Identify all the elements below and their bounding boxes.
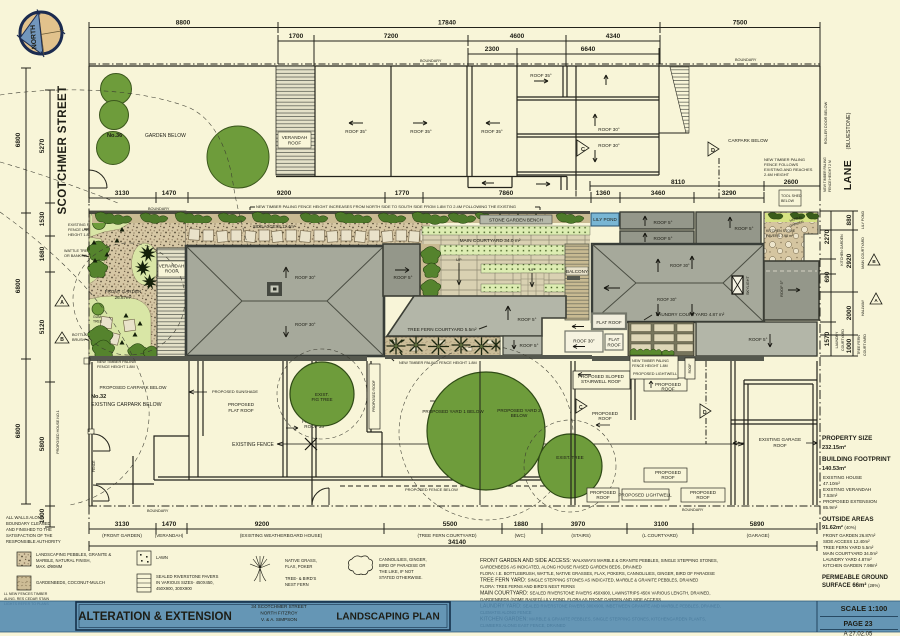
- svg-text:SIDE ACCESS 12.4m²: SIDE ACCESS 12.4m²: [253, 224, 296, 229]
- svg-text:FENCE HEIGHT 2 M: FENCE HEIGHT 2 M: [828, 160, 832, 192]
- svg-text:5800: 5800: [39, 436, 46, 451]
- svg-text:1000: 1000: [846, 338, 853, 353]
- svg-text:3970: 3970: [571, 521, 586, 528]
- svg-text:ROOF 35°: ROOF 35°: [481, 129, 503, 134]
- svg-text:BUILDING FOOTPRINT: BUILDING FOOTPRINT: [822, 456, 891, 463]
- svg-text:47.10m²: 47.10m²: [823, 481, 840, 486]
- svg-text:7200: 7200: [384, 33, 399, 40]
- svg-text:EXISTING FENCE: EXISTING FENCE: [232, 442, 274, 448]
- svg-text:ROOF: ROOF: [288, 141, 301, 146]
- svg-text:BOUNDARY: BOUNDARY: [735, 58, 757, 62]
- svg-text:ROOF: ROOF: [773, 443, 786, 448]
- svg-text:LILY POND: LILY POND: [593, 217, 617, 222]
- svg-text:6640: 6640: [581, 46, 596, 53]
- svg-text:NEW TIMBER PALING: NEW TIMBER PALING: [823, 157, 827, 192]
- svg-text:1880: 1880: [514, 521, 529, 528]
- svg-text:PAVERS 7.98 m²: PAVERS 7.98 m²: [766, 234, 794, 238]
- svg-text:NEST FERN: NEST FERN: [285, 582, 309, 587]
- svg-text:232.15m²: 232.15m²: [822, 444, 846, 451]
- svg-text:TREE FERN COURTYARD 5.5m²: TREE FERN COURTYARD 5.5m²: [408, 327, 477, 332]
- svg-text:GUM: GUM: [93, 315, 101, 319]
- svg-text:ROOF: ROOF: [696, 495, 709, 500]
- svg-text:STONE GARDEN BENCH: STONE GARDEN BENCH: [489, 218, 543, 223]
- svg-text:2600: 2600: [784, 179, 799, 186]
- svg-text:MAIN COURTYARD 34.0 m²: MAIN COURTYARD 34.0 m²: [460, 238, 521, 244]
- svg-text:(WC): (WC): [515, 533, 526, 538]
- svg-text:ROOF 35°: ROOF 35°: [410, 129, 432, 134]
- svg-text:140.53m²: 140.53m²: [822, 465, 846, 472]
- svg-text:BOUNDARY: BOUNDARY: [682, 508, 704, 512]
- svg-text:9200: 9200: [277, 190, 292, 197]
- svg-text:KITCHEN STONE: KITCHEN STONE: [766, 229, 796, 233]
- svg-text:(TREE FERN COURTYARD): (TREE FERN COURTYARD): [417, 533, 477, 538]
- svg-text:26.87m²: 26.87m²: [115, 295, 132, 300]
- svg-text:EXIST. TREE: EXIST. TREE: [556, 455, 584, 460]
- svg-text:CANNOLILIES, GINGER,: CANNOLILIES, GINGER,: [379, 557, 427, 562]
- svg-text:TREE FERN: TREE FERN: [857, 335, 861, 355]
- svg-text:RESPONSIBLE AUTHORITY: RESPONSIBLE AUTHORITY: [6, 539, 61, 544]
- svg-text:85.9m²: 85.9m²: [823, 505, 838, 510]
- svg-text:(VERANDAH): (VERANDAH): [155, 533, 184, 538]
- svg-text:ROOF 5°: ROOF 5°: [735, 226, 754, 231]
- svg-text:COURTYARD: COURTYARD: [863, 334, 867, 356]
- svg-text:WATTLE TREE: WATTLE TREE: [64, 249, 91, 253]
- svg-text:FLAT ROOF: FLAT ROOF: [596, 320, 622, 325]
- svg-text:BOUNDARY: BOUNDARY: [147, 509, 169, 513]
- svg-text:ROOF 30°: ROOF 30°: [670, 263, 690, 268]
- svg-text:PROPOSED ROOF: PROPOSED ROOF: [372, 379, 376, 412]
- svg-text:THE LIKE, IF NOT: THE LIKE, IF NOT: [379, 569, 414, 574]
- svg-text:NEW TIMBER PALING FENCE HEIGHT: NEW TIMBER PALING FENCE HEIGHT 1.8M: [399, 361, 477, 365]
- svg-text:6800: 6800: [15, 132, 22, 147]
- svg-text:2920: 2920: [846, 253, 853, 268]
- svg-text:ROOF 5°: ROOF 5°: [654, 236, 673, 241]
- svg-text:LAUNDRY: LAUNDRY: [835, 331, 839, 348]
- svg-text:(L COURTYARD): (L COURTYARD): [642, 533, 678, 538]
- svg-text:C: C: [579, 405, 583, 411]
- svg-text:8800: 8800: [176, 20, 191, 27]
- svg-text:MAX. Ø90MM: MAX. Ø90MM: [36, 564, 63, 569]
- svg-text:ALING. RES CEDAR STAIN: ALING. RES CEDAR STAIN: [4, 597, 49, 601]
- svg-text:FENCE: FENCE: [92, 460, 96, 472]
- svg-text:PROPOSED SUNSHADE: PROPOSED SUNSHADE: [212, 389, 258, 394]
- svg-text:D: D: [711, 148, 715, 154]
- svg-text:3100: 3100: [654, 521, 669, 528]
- svg-text:ROOF 30°: ROOF 30°: [598, 127, 620, 132]
- svg-text:FLAT ROOF: FLAT ROOF: [228, 408, 254, 413]
- svg-text:STATED OTHERWISE.: STATED OTHERWISE.: [379, 575, 423, 580]
- svg-text:1680: 1680: [39, 246, 46, 261]
- svg-text:(GARAGE): (GARAGE): [747, 533, 770, 538]
- svg-text:6800: 6800: [15, 423, 22, 438]
- svg-text:ROOF 30°: ROOF 30°: [295, 275, 316, 280]
- svg-text:7.53m²: 7.53m²: [823, 493, 838, 498]
- svg-text:3460: 3460: [651, 190, 666, 197]
- svg-text:1360: 1360: [596, 190, 611, 197]
- svg-text:6800: 6800: [15, 278, 22, 293]
- svg-text:4340: 4340: [606, 33, 621, 40]
- svg-text:GARDENBEDS AS INDICATED, ALONG: GARDENBEDS AS INDICATED, ALONG HOUSE RAI…: [480, 565, 642, 570]
- svg-text:PROPOSED EXTENSION: PROPOSED EXTENSION: [823, 499, 877, 504]
- svg-text:NEW TIMBER PALING: NEW TIMBER PALING: [97, 360, 136, 364]
- svg-text:FRONT GARDEN: FRONT GARDEN: [105, 289, 142, 294]
- svg-text:ROOF: ROOF: [661, 387, 674, 392]
- svg-text:OUTSIDE AREAS: OUTSIDE AREAS: [822, 516, 874, 523]
- svg-text:FLAX, POKER: FLAX, POKER: [285, 564, 312, 569]
- svg-text:LANDSCAPING PEBBLES, GRANITE &: LANDSCAPING PEBBLES, GRANITE &: [36, 552, 111, 557]
- svg-text:2.4M HEIGHT: 2.4M HEIGHT: [764, 172, 790, 177]
- svg-text:34 SCOTCHMER STREET: 34 SCOTCHMER STREET: [251, 604, 307, 609]
- svg-text:4600: 4600: [510, 33, 525, 40]
- svg-text:TREE- & BIRD'S: TREE- & BIRD'S: [285, 576, 316, 581]
- svg-text:ROOF: ROOF: [165, 269, 178, 274]
- svg-text:BALCONY: BALCONY: [566, 269, 588, 274]
- svg-text:A: A: [60, 300, 64, 306]
- svg-text:2300: 2300: [485, 46, 500, 53]
- svg-text:(BLUESTONE): (BLUESTONE): [846, 112, 852, 149]
- svg-text:No.36: No.36: [107, 133, 122, 139]
- svg-text:FLORA: TREE FERNS AND BIRD'S N: FLORA: TREE FERNS AND BIRD'S NEST FERNS: [480, 584, 575, 589]
- svg-text:IN VARIOUS SIZES- 450X450,: IN VARIOUS SIZES- 450X450,: [156, 580, 214, 585]
- svg-text:FIG TREE: FIG TREE: [311, 397, 332, 402]
- svg-text:ROOF 35°: ROOF 35°: [530, 73, 552, 78]
- svg-text:7500: 7500: [733, 20, 748, 27]
- svg-text:KITCHEN GARDEN: KITCHEN GARDEN: [840, 234, 844, 266]
- svg-text:BELOW: BELOW: [511, 413, 528, 418]
- svg-text:(STAIRS): (STAIRS): [571, 533, 591, 538]
- svg-text:MAIN COURTYARD: MAIN COURTYARD: [861, 237, 865, 269]
- svg-text:1470: 1470: [162, 190, 177, 197]
- svg-text:VERANDAH: VERANDAH: [282, 135, 308, 140]
- svg-text:COURTYARD: COURTYARD: [841, 329, 845, 351]
- svg-text:BOUNDARY: BOUNDARY: [420, 59, 442, 63]
- svg-text:PROPOSED FENCE BELOW: PROPOSED FENCE BELOW: [405, 487, 458, 492]
- svg-text:ROOF 30°: ROOF 30°: [573, 339, 595, 344]
- svg-text:FENCE HEIGHT 1.8M: FENCE HEIGHT 1.8M: [632, 364, 668, 368]
- svg-text:91.62m² (40%): 91.62m² (40%): [822, 524, 857, 531]
- svg-text:BOUNDARY CLEANED: BOUNDARY CLEANED: [6, 521, 51, 526]
- svg-text:PROPOSED LIGHTWELL: PROPOSED LIGHTWELL: [633, 372, 677, 376]
- svg-text:9200: 9200: [255, 521, 270, 528]
- svg-text:FLAT: FLAT: [609, 337, 620, 342]
- svg-text:TREE: TREE: [93, 320, 103, 324]
- svg-text:ROOF 35°: ROOF 35°: [345, 129, 367, 134]
- svg-text:ALL WALLS ALONG: ALL WALLS ALONG: [6, 515, 44, 520]
- svg-text:17840: 17840: [438, 20, 456, 27]
- svg-text:34140: 34140: [448, 539, 466, 546]
- svg-text:PROPOSED YARD 1 BELOW: PROPOSED YARD 1 BELOW: [422, 409, 484, 414]
- svg-text:SEALED RIVERSTONE PAVERS: SEALED RIVERSTONE PAVERS: [156, 574, 219, 579]
- svg-text:EXISTING CARPARK BELOW: EXISTING CARPARK BELOW: [91, 402, 162, 408]
- svg-text:FENCE HEIGHT 1.8M: FENCE HEIGHT 1.8M: [97, 365, 135, 369]
- svg-text:UP: UP: [456, 257, 462, 262]
- svg-text:ROOF 5°: ROOF 5°: [654, 220, 673, 225]
- svg-text:AND FINISHED TO THE: AND FINISHED TO THE: [6, 527, 52, 532]
- svg-text:D: D: [703, 410, 707, 416]
- svg-text:BELOW: BELOW: [781, 199, 795, 203]
- svg-text:(FRONT GARDEN): (FRONT GARDEN): [102, 533, 142, 538]
- svg-text:ROLLER DOOR BELOW: ROLLER DOOR BELOW: [824, 101, 828, 144]
- svg-text:LAUNDRY YARD 4.87m²: LAUNDRY YARD 4.87m²: [823, 557, 872, 562]
- svg-text:C: C: [581, 147, 585, 153]
- svg-text:ROOF 30°: ROOF 30°: [295, 322, 316, 327]
- svg-text:ROOF: ROOF: [661, 475, 674, 480]
- svg-text:ROOF 5°: ROOF 5°: [520, 343, 539, 348]
- svg-text:ROOF: ROOF: [688, 364, 692, 374]
- svg-text:LANDSCAPING PLAN: LANDSCAPING PLAN: [336, 612, 439, 623]
- svg-text:BRUSH: BRUSH: [72, 338, 86, 342]
- svg-text:(EXISTING WEATHERBOARD HOUSE): (EXISTING WEATHERBOARD HOUSE): [240, 533, 323, 538]
- svg-text:HEIGHT 1.8M: HEIGHT 1.8M: [68, 233, 92, 237]
- svg-text:3130: 3130: [115, 190, 130, 197]
- svg-text:PROPERTY SIZE: PROPERTY SIZE: [822, 435, 872, 442]
- svg-text:TREE FERN YARD 5.5m²: TREE FERN YARD 5.5m²: [823, 545, 874, 550]
- svg-text:ROOF: ROOF: [607, 343, 620, 348]
- svg-text:ROOF 30°: ROOF 30°: [598, 143, 620, 148]
- svg-text:1530: 1530: [39, 211, 46, 226]
- svg-text:ROOF 30°: ROOF 30°: [657, 297, 677, 302]
- svg-text:ROOF 5°: ROOF 5°: [394, 275, 413, 280]
- svg-text:UP: UP: [529, 267, 535, 272]
- svg-text:A 27.02.05: A 27.02.05: [844, 632, 873, 636]
- svg-text:5270: 5270: [39, 138, 46, 153]
- svg-text:2000: 2000: [846, 305, 853, 320]
- svg-text:NORTH FITZROY: NORTH FITZROY: [260, 611, 297, 616]
- svg-text:1470: 1470: [162, 521, 177, 528]
- svg-text:LL NEW FENCES TIMBER: LL NEW FENCES TIMBER: [4, 592, 48, 596]
- svg-text:BOUNDARY: BOUNDARY: [148, 207, 170, 211]
- svg-text:PAGE 23: PAGE 23: [843, 621, 872, 628]
- svg-text:ROOF 5°: ROOF 5°: [779, 280, 784, 297]
- svg-text:SIDE ACCESS 12.40m²: SIDE ACCESS 12.40m²: [823, 539, 870, 544]
- svg-text:EXISTING HOUSE: EXISTING HOUSE: [823, 475, 862, 480]
- svg-text:7860: 7860: [499, 190, 514, 197]
- svg-text:NEW TIMBER PALING FENCE HEIGHT: NEW TIMBER PALING FENCE HEIGHT INCREASES…: [256, 204, 516, 209]
- svg-text:ROOF: ROOF: [598, 416, 611, 421]
- svg-text:GARDEN BELOW: GARDEN BELOW: [145, 133, 186, 139]
- svg-text:FLORA: I.E. BOTTLEBRUSH, WATTL: FLORA: I.E. BOTTLEBRUSH, WATTLE, NATIVE …: [480, 571, 715, 576]
- svg-text:SKYLIGHT: SKYLIGHT: [746, 276, 750, 295]
- svg-text:3130: 3130: [115, 521, 130, 528]
- svg-text:5500: 5500: [443, 521, 458, 528]
- svg-text:5890: 5890: [750, 521, 765, 528]
- svg-text:450X900, 300X900: 450X900, 300X900: [156, 586, 193, 591]
- svg-text:1570: 1570: [824, 331, 831, 346]
- svg-text:ROOF 5°: ROOF 5°: [749, 337, 768, 342]
- svg-text:HALLWAY: HALLWAY: [861, 299, 865, 316]
- svg-text:BIRD OF PARADISE OR: BIRD OF PARADISE OR: [379, 563, 425, 568]
- svg-text:EXISTING GARAGE: EXISTING GARAGE: [759, 437, 801, 442]
- svg-text:SCOTCHMER STREET: SCOTCHMER STREET: [57, 85, 69, 214]
- svg-text:880: 880: [846, 214, 853, 225]
- svg-text:CARPARK BELOW: CARPARK BELOW: [728, 138, 768, 143]
- svg-text:ALTERATION & EXTENSION: ALTERATION & EXTENSION: [78, 611, 232, 623]
- svg-text:LAWN: LAWN: [156, 555, 168, 560]
- svg-text:PERMEABLE GROUND: PERMEABLE GROUND: [822, 575, 889, 581]
- svg-text:5120: 5120: [39, 319, 46, 334]
- svg-text:V. & A. SIMPSON: V. & A. SIMPSON: [261, 617, 297, 622]
- svg-text:PROPOSED HOUSE NO.1: PROPOSED HOUSE NO.1: [56, 410, 60, 454]
- svg-text:B: B: [60, 337, 64, 343]
- svg-text:1700: 1700: [289, 33, 304, 40]
- svg-text:ROOF: ROOF: [596, 495, 609, 500]
- svg-text:TOOL SHED: TOOL SHED: [781, 194, 802, 198]
- svg-text:2270: 2270: [824, 229, 831, 244]
- svg-text:1770: 1770: [395, 190, 410, 197]
- svg-text:3290: 3290: [722, 190, 737, 197]
- svg-text:690: 690: [824, 271, 831, 282]
- svg-text:SATISFACTION OF THE: SATISFACTION OF THE: [6, 533, 53, 538]
- svg-text:GARDENBEDS, COCONUT-MULCH: GARDENBEDS, COCONUT-MULCH: [36, 580, 105, 585]
- svg-text:STAIRWELL ROOF: STAIRWELL ROOF: [581, 379, 621, 384]
- svg-text:MAIN COURTYARD 34.0m²: MAIN COURTYARD 34.0m²: [823, 551, 878, 556]
- svg-text:ROOF 5°: ROOF 5°: [518, 317, 537, 322]
- svg-text:FRONT GARDEN 26.87m²: FRONT GARDEN 26.87m²: [823, 533, 876, 538]
- svg-text:PROPOSED CARPARK BELOW: PROPOSED CARPARK BELOW: [99, 385, 167, 390]
- svg-text:LAUNDRY COURTYARD 4.87 m²: LAUNDRY COURTYARD 4.87 m²: [656, 312, 725, 317]
- svg-text:EXISTING VERANDAH: EXISTING VERANDAH: [823, 487, 871, 492]
- svg-text:KITCHEN GARDEN 7.98m²: KITCHEN GARDEN 7.98m²: [823, 563, 878, 568]
- svg-text:PROPOSED LIGHTWELL: PROPOSED LIGHTWELL: [618, 493, 672, 498]
- svg-text:MARBLE, NATURAL FINISH,: MARBLE, NATURAL FINISH,: [36, 558, 91, 563]
- svg-text:SCALE 1:100: SCALE 1:100: [841, 604, 888, 613]
- svg-text:LILY POND: LILY POND: [861, 211, 865, 229]
- svg-text:NATIVE GRASS,: NATIVE GRASS,: [285, 558, 317, 563]
- svg-text:NEW TIMBER PALING: NEW TIMBER PALING: [632, 359, 669, 363]
- svg-text:No.32: No.32: [91, 394, 106, 400]
- svg-text:8110: 8110: [671, 179, 685, 186]
- svg-text:SURFACE 66m² (28%): SURFACE 66m² (28%): [822, 582, 880, 589]
- svg-text:PROPOSED: PROPOSED: [228, 402, 255, 407]
- svg-text:LANE: LANE: [842, 160, 854, 191]
